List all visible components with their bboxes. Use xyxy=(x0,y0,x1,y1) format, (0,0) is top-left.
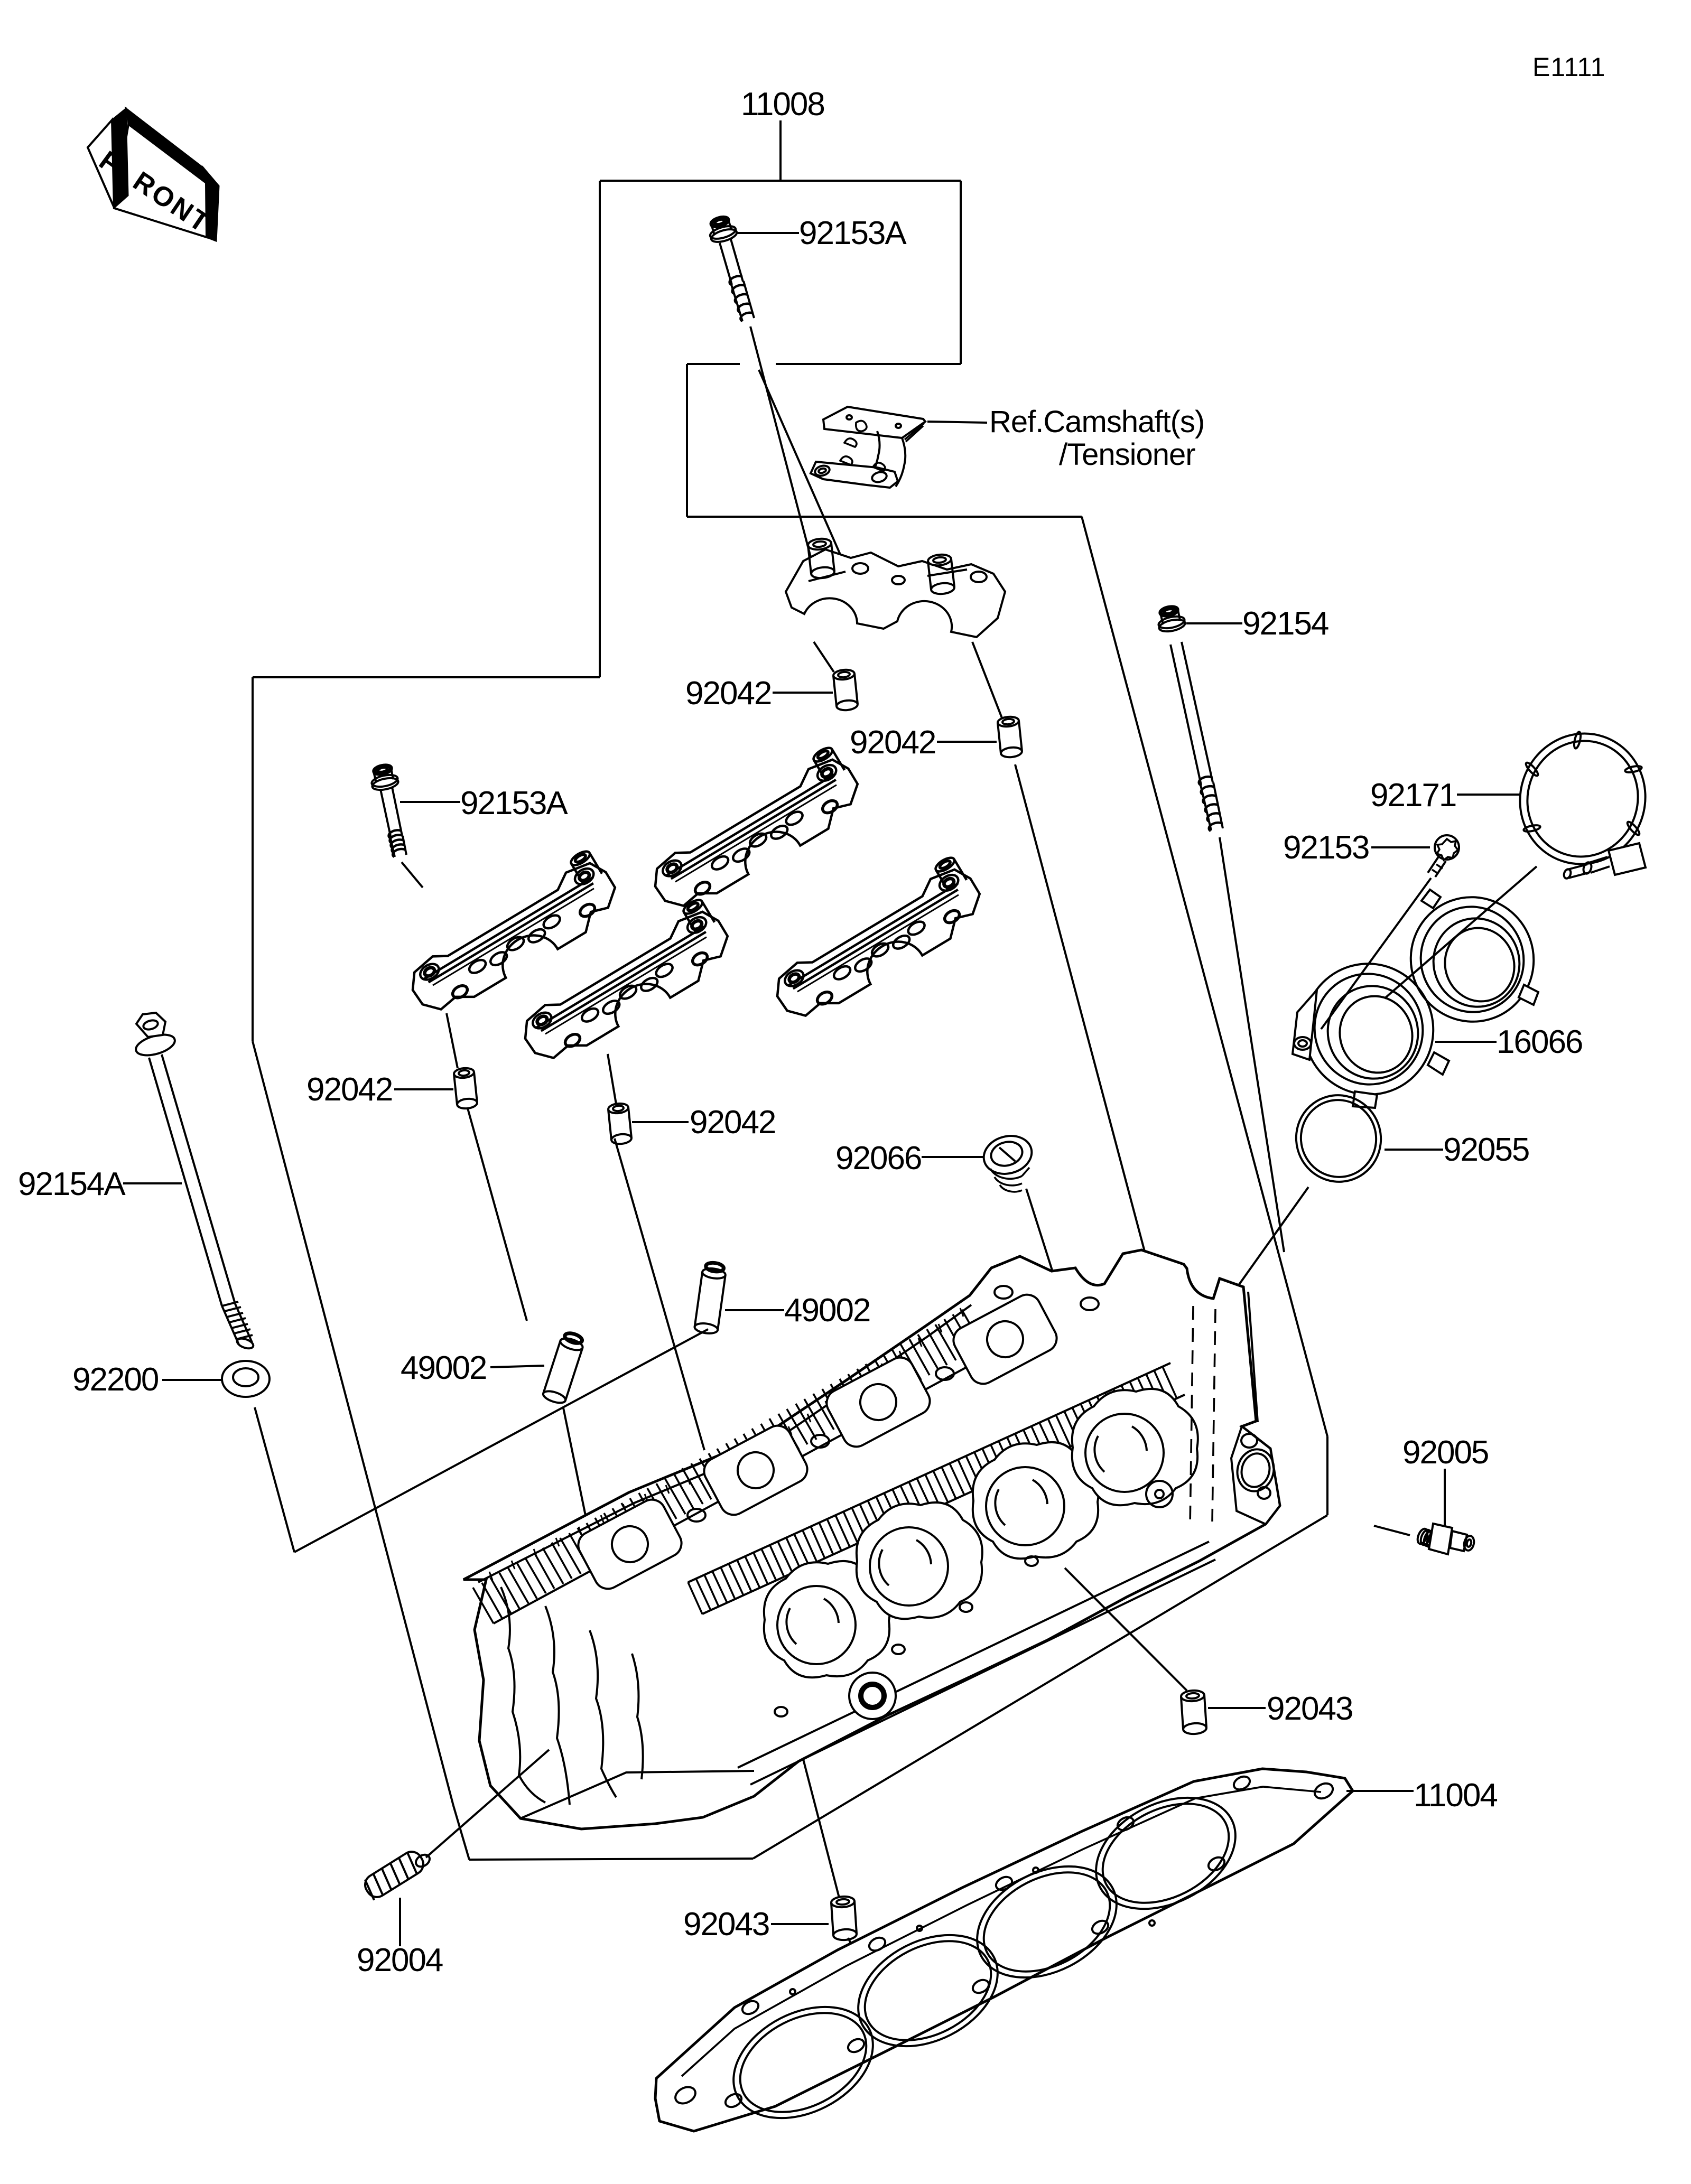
svg-text:92042: 92042 xyxy=(685,675,771,712)
svg-text:92171: 92171 xyxy=(1370,777,1456,814)
svg-text:92154: 92154 xyxy=(1242,605,1328,642)
svg-text:/Tensioner: /Tensioner xyxy=(1059,437,1195,472)
svg-text:92200: 92200 xyxy=(72,1361,159,1398)
svg-text:11008: 11008 xyxy=(741,86,824,123)
svg-text:92005: 92005 xyxy=(1402,1434,1488,1471)
svg-text:92154A: 92154A xyxy=(18,1166,126,1202)
svg-text:49002: 49002 xyxy=(784,1292,870,1329)
svg-text:92066: 92066 xyxy=(835,1140,921,1177)
svg-text:92043: 92043 xyxy=(1267,1691,1352,1727)
svg-text:92043: 92043 xyxy=(683,1906,769,1943)
svg-text:92042: 92042 xyxy=(850,724,935,761)
svg-text:92153: 92153 xyxy=(1283,829,1369,866)
svg-text:11004: 11004 xyxy=(1414,1777,1497,1814)
svg-text:92042: 92042 xyxy=(306,1071,392,1108)
svg-text:92042: 92042 xyxy=(690,1104,775,1141)
svg-text:92153A: 92153A xyxy=(460,785,568,822)
svg-text:92004: 92004 xyxy=(357,1942,443,1978)
svg-text:Ref.Camshaft(s): Ref.Camshaft(s) xyxy=(989,405,1204,439)
svg-text:E1111: E1111 xyxy=(1532,52,1605,82)
svg-text:16066: 16066 xyxy=(1497,1024,1582,1060)
svg-text:92055: 92055 xyxy=(1443,1132,1529,1168)
svg-text:92153A: 92153A xyxy=(799,215,907,251)
svg-text:49002: 49002 xyxy=(401,1350,486,1386)
